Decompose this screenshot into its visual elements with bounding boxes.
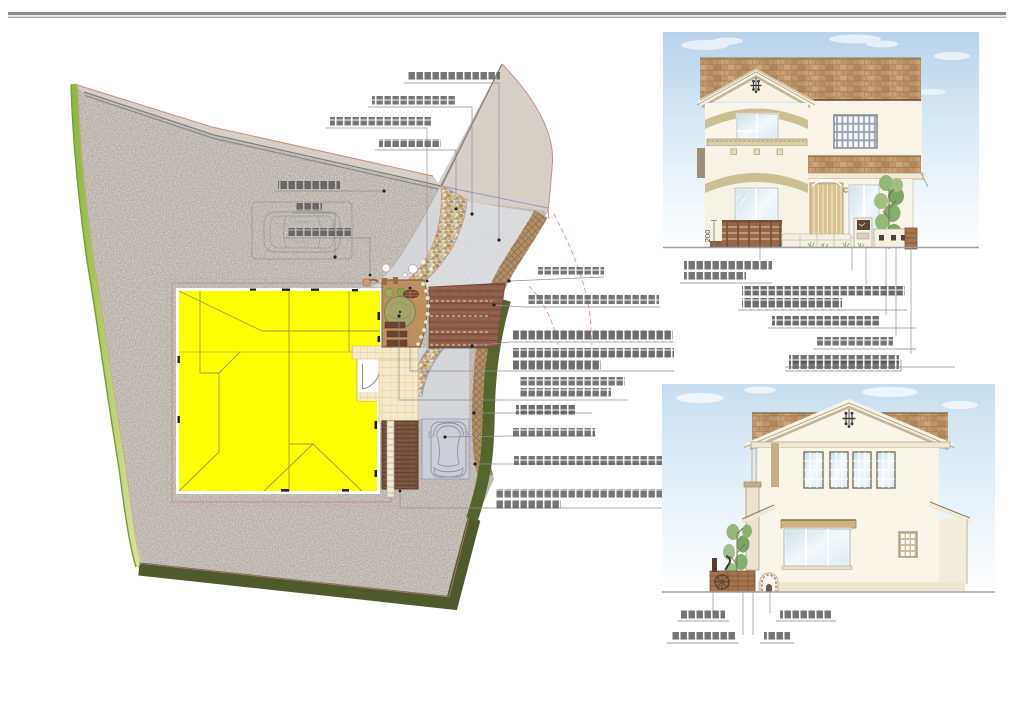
svg-text:200: 200	[703, 230, 712, 243]
